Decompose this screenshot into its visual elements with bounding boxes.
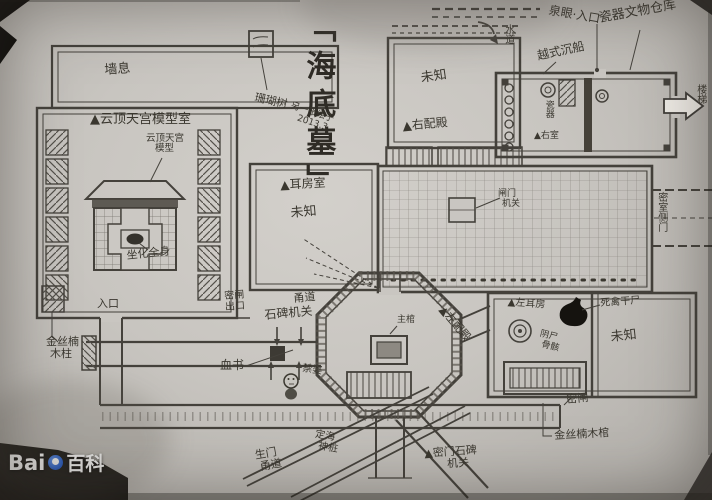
label-life-gate: 生门 甬道	[254, 446, 283, 474]
label-main-corridor: 甬道	[293, 291, 316, 305]
top-corridor	[52, 46, 338, 108]
jar-circles	[505, 84, 513, 151]
dead-bird-silhouette	[560, 297, 588, 326]
label-top-corridor: 墙息	[104, 62, 131, 78]
label-model-caption: 云顶天宫 模型	[146, 134, 184, 155]
bottom-corridor	[100, 405, 560, 428]
label-unknown-mid: 未知	[290, 205, 317, 221]
label-stairs: 楼梯	[694, 84, 705, 104]
coral-box	[249, 31, 273, 57]
jinpo-figure	[284, 374, 298, 400]
coffin-pit	[347, 372, 411, 398]
top-dashed-marks	[432, 9, 540, 17]
label-unknown-right: 未知	[610, 328, 637, 345]
tomb-map-photo: 「海底墓」 另一张绘于 2013.3 珊瑚树 墙息 ▲云顶天宫模型室 云顶天宫 …	[0, 0, 712, 500]
label-secret-door-mechanism: ▲密门石碑 机关	[424, 444, 478, 471]
baidu-logo-icon	[48, 455, 63, 470]
model-room	[37, 108, 237, 318]
nanmu-pillar-box	[42, 286, 64, 312]
label-ear-chamber: ▲耳房室	[280, 177, 326, 192]
label-sluice-gate: 密闸	[566, 392, 589, 406]
label-right-small-chamber: ▲右室	[534, 132, 559, 142]
baidu-baike-watermark: Bai 百科	[8, 449, 104, 476]
label-waterway: 水道	[502, 24, 513, 44]
label-nanmu-pillar: 金丝楠 木柱	[46, 336, 79, 360]
label-gate-mechanism: 闸门 机关	[498, 190, 520, 209]
watermark-suffix: 百科	[66, 449, 104, 476]
southeast-rooms	[458, 293, 696, 436]
label-entrance: 入口	[97, 298, 119, 310]
label-secret-gate-exit: 密闸 出口	[224, 291, 245, 314]
label-sea-anchor: 定海 神桩	[312, 430, 340, 456]
west-corridor	[82, 327, 321, 380]
pillar-column-right	[198, 130, 220, 300]
watermark-prefix: Bai	[8, 451, 45, 475]
label-blood-writing: 血书	[220, 359, 244, 372]
label-porcelain: 瓷器	[543, 100, 553, 118]
pillar-column-left	[46, 130, 68, 300]
label-side-door: 密室侧门	[655, 192, 666, 232]
label-model-room: ▲云顶天宫模型室	[90, 113, 191, 127]
label-main-coffin: 主棺	[397, 316, 415, 326]
main-coffin-plate	[371, 326, 407, 364]
warehouse-suite	[496, 69, 680, 157]
